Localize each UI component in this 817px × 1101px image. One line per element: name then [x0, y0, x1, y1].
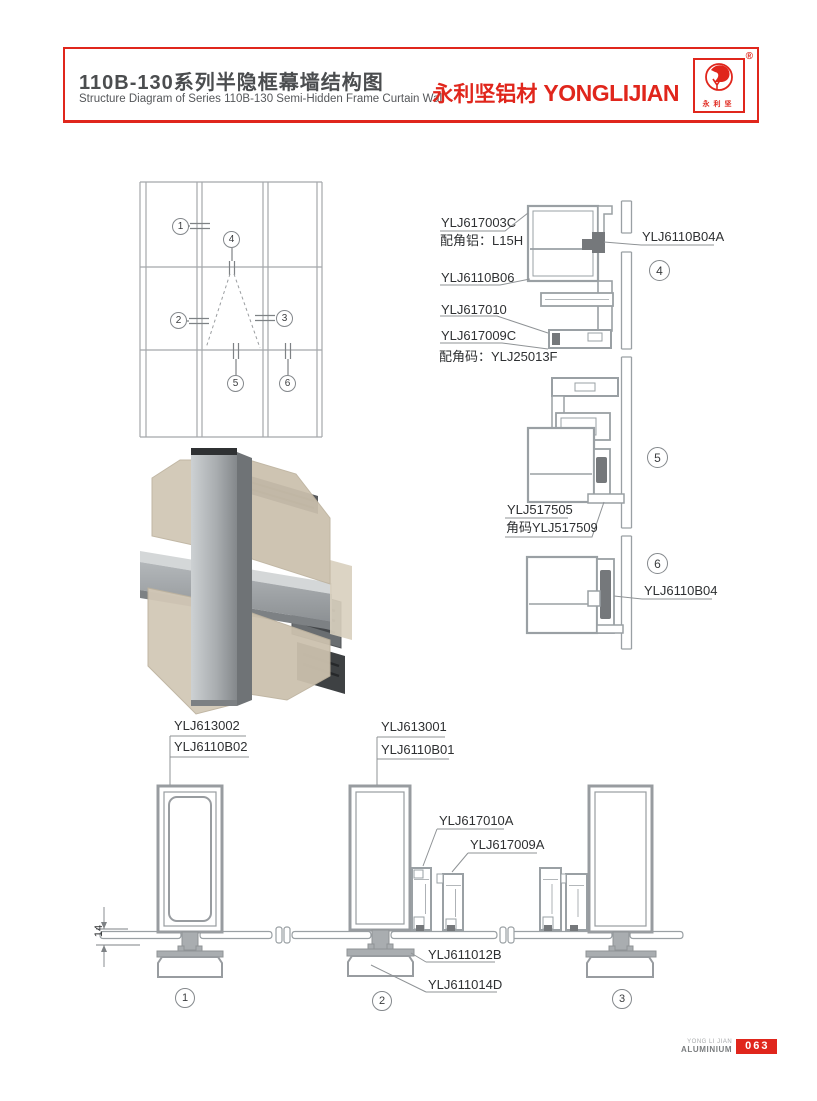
- part-label: YLJ6110B01: [381, 743, 455, 757]
- horizontal-section-details-drawing: [90, 715, 720, 1020]
- part-label: YLJ517505: [507, 503, 573, 517]
- part-label: 角码YLJ517509: [506, 521, 598, 535]
- callout-1: 1: [172, 218, 189, 235]
- registered-trademark: ®: [746, 51, 753, 62]
- part-label: YLJ617010A: [439, 814, 513, 828]
- callout-5: 5: [227, 375, 244, 392]
- page-title-cn: 110B-130系列半隐框幕墙结构图: [79, 66, 384, 95]
- section6-profiles: [527, 557, 623, 633]
- assembly-3d-render: [125, 445, 400, 715]
- brand-name: 永利坚铝材YONGLIJIAN: [432, 78, 679, 108]
- callout-1-detail: 1: [175, 988, 195, 1008]
- page-title-en: Structure Diagram of Series 110B-130 Sem…: [79, 93, 445, 105]
- part-label: YLJ6110B06: [441, 271, 515, 285]
- part-label: YLJ611012B: [428, 948, 502, 962]
- part-label: YLJ617010: [441, 303, 507, 317]
- callout-4-detail: 4: [649, 260, 670, 281]
- callout-2: 2: [170, 312, 187, 329]
- elevation-schematic-diagram: [130, 170, 345, 450]
- page-number-badge: 063: [736, 1039, 776, 1054]
- section4-profiles: [528, 206, 613, 348]
- part-label: 配角铝：L15H: [440, 234, 523, 248]
- logo-emblem-icon: [695, 60, 743, 96]
- part-label: 配角码：YLJ25013F: [439, 350, 558, 364]
- footer: YONG LI JIAN ALUMINIUM 063: [681, 1039, 777, 1054]
- part-label: YLJ617003C: [441, 216, 516, 230]
- part-label: YLJ6110B04A: [642, 230, 724, 244]
- callout-6-detail: 6: [647, 553, 668, 574]
- callout-2-detail: 2: [372, 991, 392, 1011]
- part-label: YLJ617009C: [441, 329, 516, 343]
- callout-4: 4: [223, 231, 240, 248]
- callout-3: 3: [276, 310, 293, 327]
- callout-6: 6: [279, 375, 296, 392]
- brand-name-en: YONGLIJIAN: [543, 80, 679, 106]
- brand-logo: 永利坚: [693, 58, 745, 113]
- section1-profiles: [157, 786, 223, 977]
- header: 110B-130系列半隐框幕墙结构图 Structure Diagram of …: [63, 47, 759, 123]
- brand-name-cn: 永利坚铝材: [432, 83, 537, 106]
- catalog-page: 110B-130系列半隐框幕墙结构图 Structure Diagram of …: [0, 0, 817, 1101]
- part-label: YLJ613002: [174, 719, 240, 733]
- glass-strip: [622, 201, 632, 649]
- footer-brand-line2: ALUMINIUM: [681, 1045, 732, 1054]
- part-label: YLJ617009A: [470, 838, 544, 852]
- dimension-14: 14: [93, 920, 105, 942]
- part-label: YLJ6110B02: [174, 740, 248, 754]
- part-label: YLJ6110B04: [644, 584, 718, 598]
- footer-brand-text: YONG LI JIAN ALUMINIUM: [681, 1039, 732, 1054]
- callout-3-detail: 3: [612, 989, 632, 1009]
- callout-5-detail: 5: [647, 447, 668, 468]
- section3-profiles: [540, 786, 656, 977]
- part-label: YLJ611014D: [428, 978, 502, 992]
- part-label: YLJ613001: [381, 720, 447, 734]
- section5-profiles: [528, 378, 624, 503]
- logo-characters: 永利坚: [695, 99, 743, 109]
